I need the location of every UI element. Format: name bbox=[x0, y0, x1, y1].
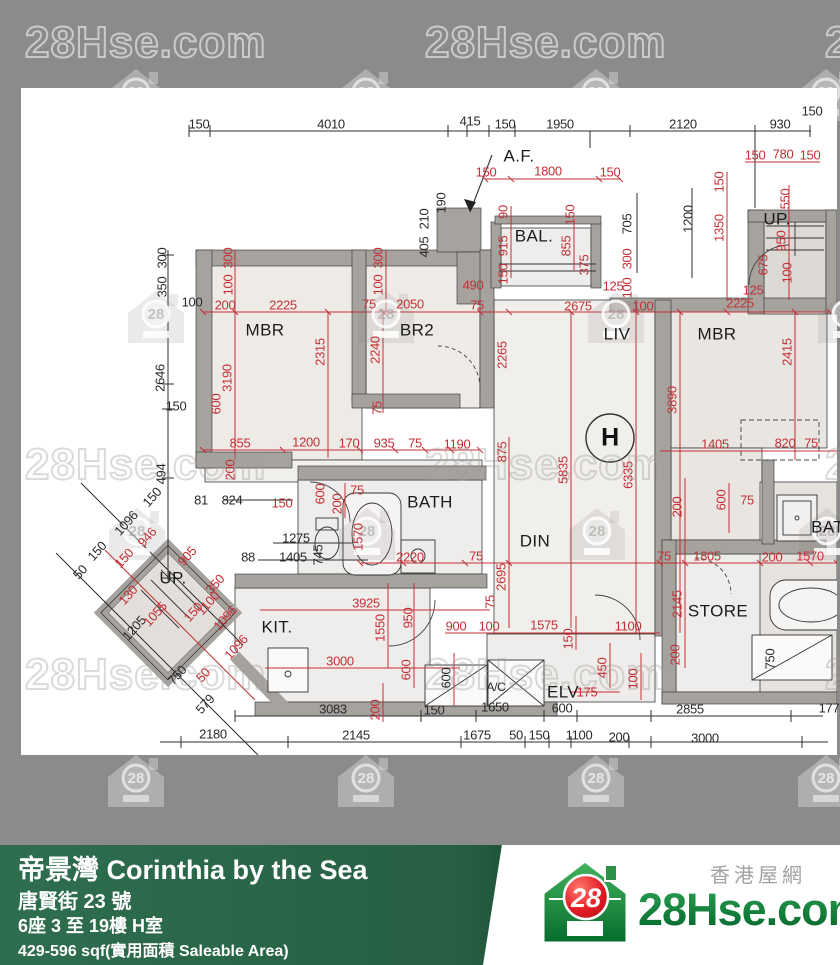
site-logo[interactable]: 28 28Hse.com 香港屋網 bbox=[535, 855, 835, 960]
estate-address: 唐賢街 23 號 bbox=[18, 885, 131, 914]
room-mbr-right bbox=[671, 312, 827, 448]
logo-number: 28 bbox=[570, 883, 601, 913]
watermark-text: 28Hse.com bbox=[25, 18, 266, 68]
logo-chinese-text: 香港屋網 bbox=[710, 859, 806, 888]
site-logo-text: 28Hse.com bbox=[638, 884, 840, 936]
watermark-house-icon: 28 bbox=[793, 752, 840, 810]
svg-text:28: 28 bbox=[128, 770, 145, 787]
watermark-house-icon: 28 bbox=[103, 752, 169, 810]
room-mbr-left bbox=[205, 258, 362, 460]
estate-area: 429-596 sqf(實用面積 Saleable Area) bbox=[18, 937, 289, 961]
watermark-house-icon: 28 bbox=[333, 752, 399, 810]
watermark-house-icon: 28 bbox=[563, 752, 629, 810]
room-store bbox=[676, 554, 762, 692]
estate-title: 帝景灣 Corinthia by the Sea bbox=[18, 848, 368, 887]
footer-bar: 帝景灣 Corinthia by the Sea 唐賢街 23 號 6座 3 至… bbox=[0, 845, 840, 965]
watermark-text: 28Hse.com bbox=[825, 18, 840, 68]
floorplan-drawing bbox=[21, 88, 837, 755]
watermark-text: 28Hse.com bbox=[425, 18, 666, 68]
floorplan-area bbox=[21, 88, 837, 755]
logo-house-icon: 28 bbox=[535, 855, 635, 947]
svg-text:28: 28 bbox=[358, 770, 375, 787]
svg-text:28: 28 bbox=[818, 770, 835, 787]
page: { "colors":{"background_gray":"#8b8b8b",… bbox=[0, 0, 840, 965]
room-liv-din bbox=[494, 300, 655, 634]
estate-block-floor: 6座 3 至 19樓 H室 bbox=[18, 912, 163, 938]
svg-text:28: 28 bbox=[588, 770, 605, 787]
room-balcony bbox=[501, 228, 591, 286]
